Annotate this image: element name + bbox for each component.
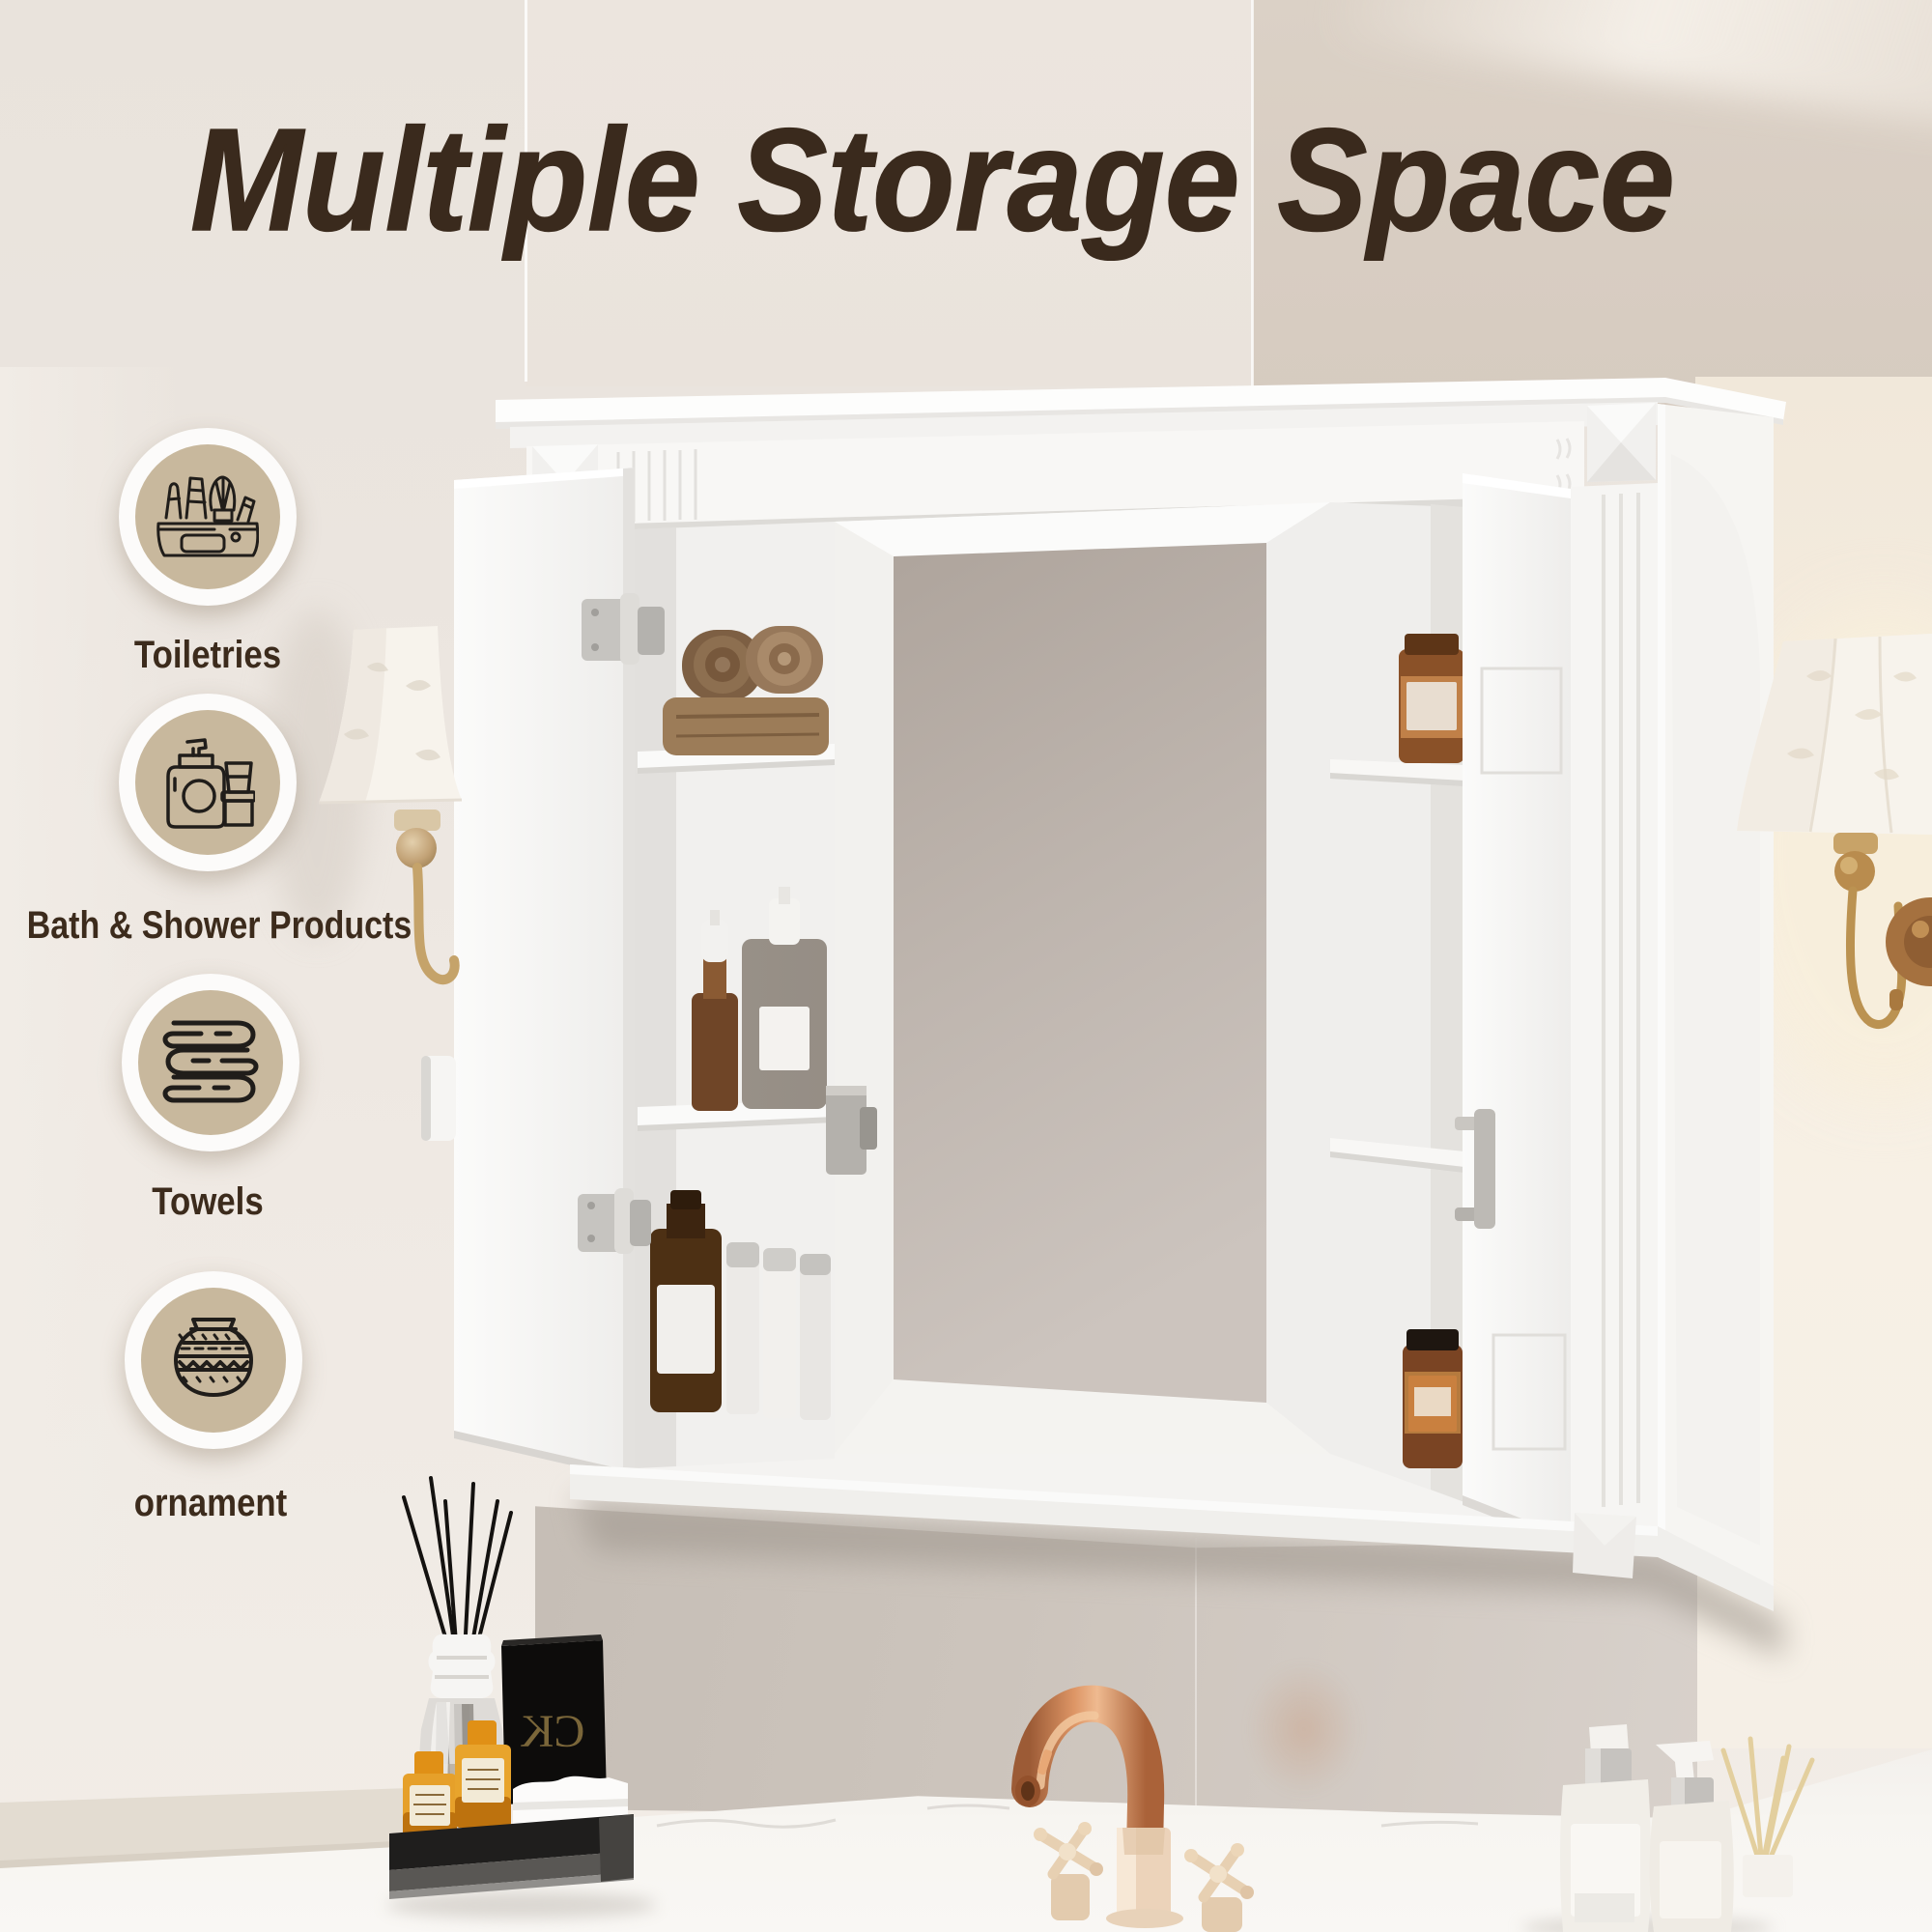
svg-text:CK: CK — [520, 1706, 584, 1757]
